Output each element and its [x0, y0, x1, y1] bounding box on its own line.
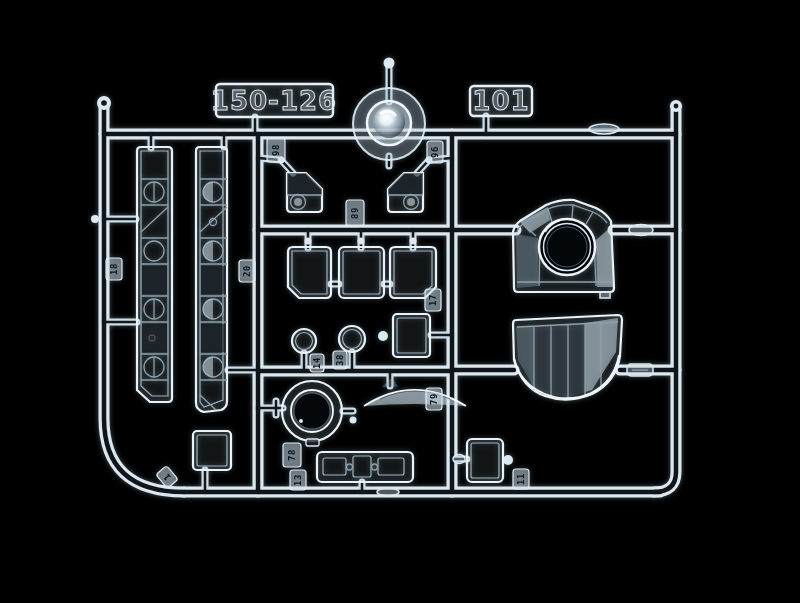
part-number-tag: 38 [333, 351, 347, 369]
part-number-text: 14 [312, 357, 322, 369]
cab-side-window-part-left [287, 173, 322, 212]
part-number-tag: 78 [283, 443, 301, 467]
part-number-tag: 98 [267, 138, 285, 162]
part-number-text: 89 [350, 207, 360, 219]
window-frame-part-2 [339, 247, 384, 298]
clear-lens-part-left [292, 329, 316, 353]
part-number-tag: 89 [346, 200, 364, 226]
small-square-window-part [193, 431, 231, 470]
window-strip-part-left [137, 147, 172, 402]
sprue-illustration: 150-126 101 98 18 20 89 96 14 38 17 79 [0, 0, 800, 603]
clear-lens-part-right [339, 326, 365, 352]
headlight-bezel-part [282, 381, 342, 446]
window-strip-part-right [196, 147, 227, 412]
window-frame-part-1 [288, 247, 331, 298]
mold-number-text: 150-126 [211, 86, 337, 116]
part-number-tag: 14 [310, 354, 324, 372]
part-number-text: 96 [430, 146, 440, 158]
part-number-tag: 11 [513, 469, 529, 489]
cab-side-window-part-right [388, 173, 423, 212]
dome-glazing-part [513, 200, 614, 298]
part-number-tag: 13 [290, 470, 306, 490]
part-number-text: 38 [335, 354, 345, 366]
mold-number-plate: 150-126 [211, 84, 337, 117]
part-number-text: 11 [516, 473, 526, 485]
part-number-text: 17 [428, 294, 438, 306]
part-number-tag: 20 [239, 260, 255, 282]
part-number-text: 98 [271, 144, 281, 156]
small-window-frame-part [393, 314, 430, 357]
part-number-text: 20 [242, 265, 252, 277]
part-number-tag: 17 [425, 289, 441, 311]
part-number-tag: 96 [427, 141, 443, 163]
part-number-text: 79 [429, 393, 439, 405]
part-number-text: 78 [287, 449, 297, 461]
lower-windscreen-part [513, 315, 622, 400]
square-window-part-right [467, 439, 503, 482]
sprue-code-plate: 101 [470, 86, 532, 116]
roof-lens-part [353, 88, 425, 160]
part-number-tag: 79 [426, 388, 442, 410]
sprue-code-text: 101 [472, 86, 529, 116]
clear-sprue-photo: 150-126 101 98 18 20 89 96 14 38 17 79 [0, 0, 800, 603]
part-number-text: 18 [109, 263, 119, 275]
part-number-tag: 18 [106, 258, 122, 280]
part-number-text: 13 [293, 474, 303, 486]
triple-window-strip-part [317, 452, 413, 482]
